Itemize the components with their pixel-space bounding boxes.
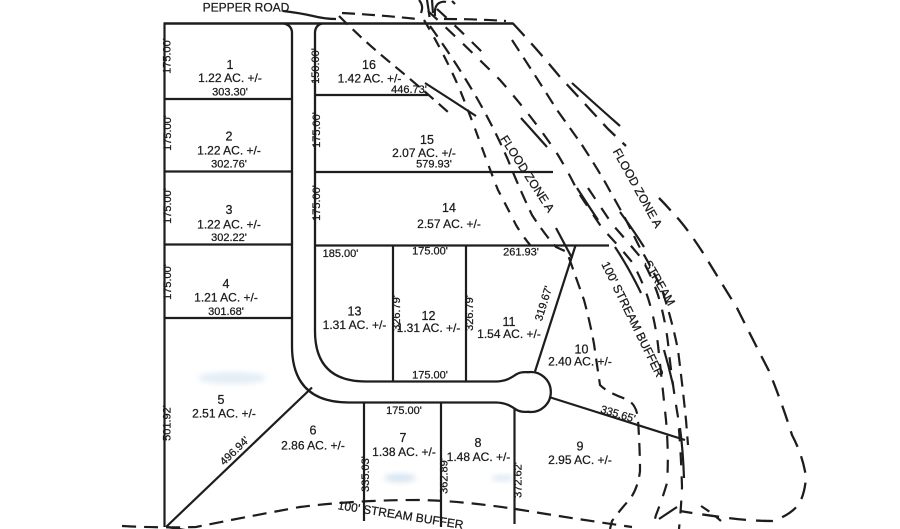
svg-text:PEPPER ROAD: PEPPER ROAD — [203, 1, 290, 15]
svg-text:303.30': 303.30' — [212, 87, 248, 99]
svg-text:1: 1 — [227, 58, 234, 72]
svg-text:301.68': 301.68' — [208, 306, 244, 318]
svg-text:175.00': 175.00' — [162, 264, 174, 300]
svg-text:3: 3 — [226, 203, 233, 217]
svg-text:2.86 AC. +/-: 2.86 AC. +/- — [281, 439, 345, 453]
svg-text:185.00': 185.00' — [323, 248, 359, 260]
svg-text:372.62': 372.62' — [513, 462, 525, 498]
svg-text:150.00': 150.00' — [310, 48, 322, 84]
svg-text:2.57 AC. +/-: 2.57 AC. +/- — [417, 217, 481, 231]
svg-text:579.93': 579.93' — [416, 159, 452, 171]
svg-text:2.51 AC. +/-: 2.51 AC. +/- — [192, 407, 256, 421]
svg-text:446.73': 446.73' — [391, 84, 427, 96]
svg-text:175.00': 175.00' — [412, 246, 448, 258]
svg-text:1.22 AC. +/-: 1.22 AC. +/- — [197, 218, 261, 232]
svg-text:302.22': 302.22' — [211, 232, 247, 244]
svg-text:302.76': 302.76' — [211, 159, 247, 171]
svg-text:6: 6 — [310, 424, 317, 438]
svg-text:175.00': 175.00' — [311, 185, 323, 221]
svg-text:5: 5 — [218, 393, 225, 407]
svg-text:1.22 AC. +/-: 1.22 AC. +/- — [198, 71, 262, 85]
svg-text:14: 14 — [442, 201, 456, 215]
svg-text:4: 4 — [223, 277, 230, 291]
svg-text:2.40 AC. +/-: 2.40 AC. +/- — [548, 355, 612, 369]
svg-text:1.38 AC. +/-: 1.38 AC. +/- — [372, 445, 436, 459]
svg-text:175.00': 175.00' — [412, 370, 448, 382]
svg-text:13: 13 — [348, 305, 362, 319]
svg-text:16: 16 — [362, 58, 376, 72]
svg-text:175.00': 175.00' — [311, 112, 323, 148]
svg-text:261.93': 261.93' — [503, 247, 539, 259]
svg-text:1.48 AC. +/-: 1.48 AC. +/- — [447, 450, 511, 464]
svg-text:175.00': 175.00' — [162, 115, 174, 151]
svg-text:1.54 AC. +/-: 1.54 AC. +/- — [477, 327, 541, 341]
svg-text:8: 8 — [475, 436, 482, 450]
svg-text:175.00': 175.00' — [162, 188, 174, 224]
svg-text:326.79': 326.79' — [464, 295, 476, 331]
svg-text:2.95 AC. +/-: 2.95 AC. +/- — [548, 453, 612, 467]
svg-text:175.00': 175.00' — [162, 38, 174, 74]
svg-text:326.79': 326.79' — [391, 295, 403, 331]
svg-text:1.22 AC. +/-: 1.22 AC. +/- — [197, 144, 261, 158]
svg-text:2: 2 — [226, 130, 233, 144]
svg-text:501.92': 501.92' — [162, 405, 174, 441]
svg-text:335.03': 335.03' — [360, 456, 372, 492]
svg-text:1.31 AC. +/-: 1.31 AC. +/- — [323, 318, 387, 332]
svg-text:175.00': 175.00' — [386, 405, 422, 417]
svg-text:7: 7 — [400, 431, 407, 445]
svg-text:15: 15 — [420, 133, 434, 147]
svg-text:9: 9 — [577, 440, 584, 454]
svg-text:1.21 AC. +/-: 1.21 AC. +/- — [194, 291, 258, 305]
svg-text:1.31 AC. +/-: 1.31 AC. +/- — [397, 321, 461, 335]
